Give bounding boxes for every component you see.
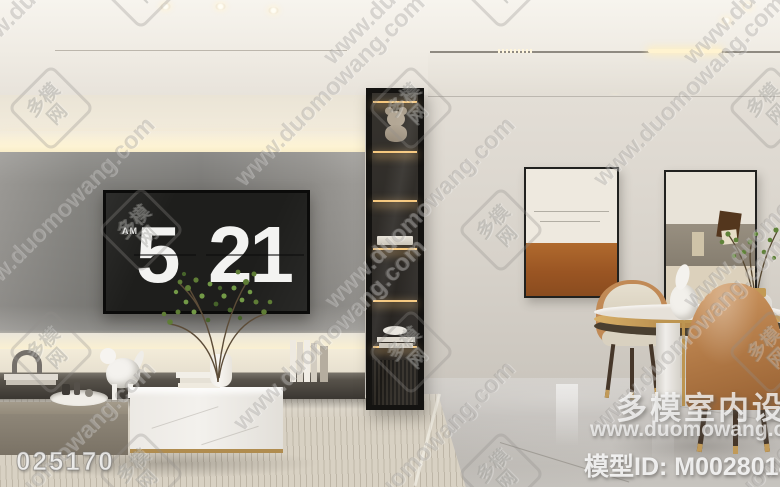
recessed-downlight [160, 3, 171, 10]
book-row [290, 338, 330, 384]
recessed-downlight [742, 3, 753, 10]
bookend [320, 346, 328, 382]
marble-vein [201, 426, 258, 445]
recessed-downlight [215, 3, 226, 10]
artwork-detail-line [534, 211, 609, 212]
ceiling-shadow-gap [55, 50, 347, 51]
recessed-downlight [721, 17, 732, 24]
scene-id: 025170 [16, 446, 115, 477]
wall-ceiling-junction [428, 96, 780, 97]
recessed-downlight [268, 7, 279, 14]
cat-sculpture-leg [112, 384, 117, 400]
model-id-label: 模型ID: M0028018 [584, 447, 780, 483]
coffee-table-marble [130, 387, 283, 453]
brand-site-watermark: www.duomowang.com [590, 418, 780, 442]
potted-plant [150, 244, 280, 384]
cove-light-top [0, 131, 365, 153]
display-cabinet [366, 88, 424, 410]
artwork-rust-field [526, 243, 617, 296]
artwork-detail-line [540, 221, 600, 222]
book-spine [297, 342, 303, 382]
book-spine [311, 343, 317, 382]
decor-bottle [74, 382, 80, 395]
arch-sculpture [12, 350, 42, 375]
book-spine [290, 340, 296, 382]
book-spine [304, 340, 310, 382]
ceiling-soffit [428, 53, 780, 98]
cabinet-glass-reflection [372, 93, 418, 405]
floor-reflection [556, 384, 578, 446]
interior-render-scene: AM 5 21 [0, 0, 780, 487]
decor-bottle [62, 384, 70, 395]
coffee-table-brass-base [130, 449, 283, 453]
artwork-left [524, 167, 619, 298]
track-light [430, 51, 780, 53]
cat-sculpture-head [100, 348, 116, 364]
book-stack [6, 380, 56, 385]
marble-vein [152, 406, 219, 429]
track-light-dots [498, 49, 534, 53]
track-light-lit-segment [648, 49, 722, 53]
decor-sphere [85, 389, 93, 397]
